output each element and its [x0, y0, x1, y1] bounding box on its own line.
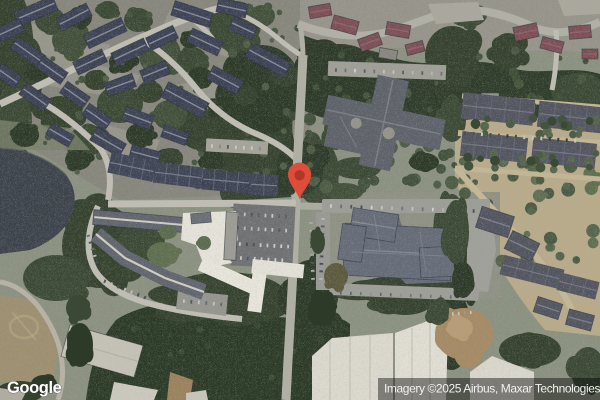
svg-text:Imagery ©2025 Airbus, Maxar Te: Imagery ©2025 Airbus, Maxar Technologies — [384, 382, 600, 396]
svg-text:Google: Google — [7, 379, 62, 397]
